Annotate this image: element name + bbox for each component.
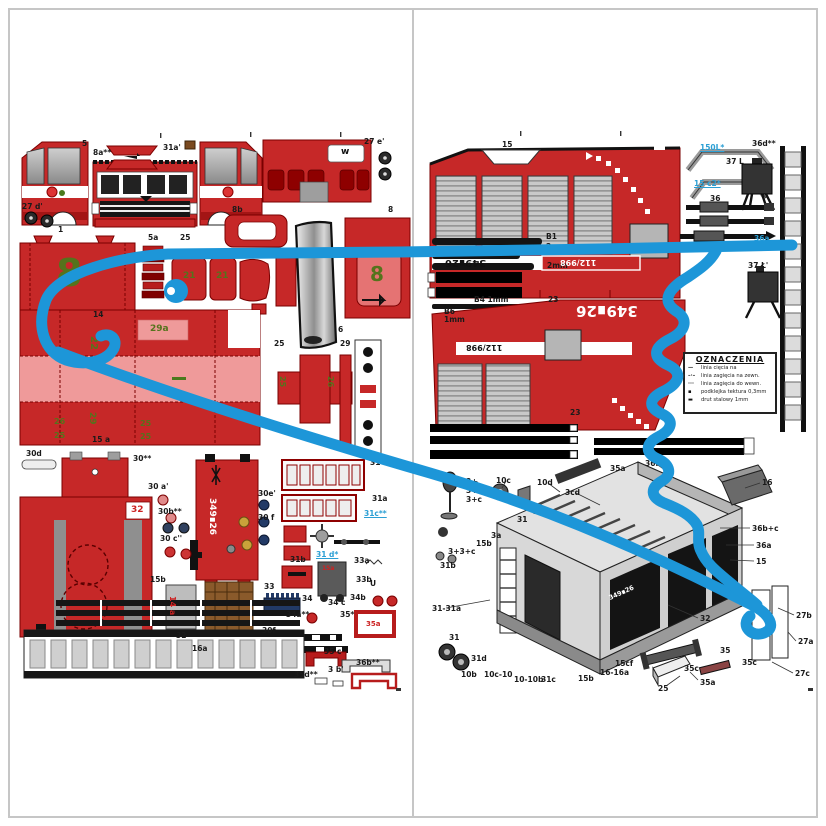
part-label: 31 xyxy=(517,516,527,524)
part-label: 35a xyxy=(700,679,716,687)
part-label: 34 xyxy=(302,595,312,603)
part-label: 2mm xyxy=(546,243,567,251)
part-label: 25 xyxy=(54,432,65,440)
part-label: B4 1mm xyxy=(474,296,508,304)
part-label: 8a** xyxy=(93,149,111,157)
part-label: 30b** xyxy=(158,508,182,516)
part-label: 32 xyxy=(176,632,186,640)
part-label: 31b xyxy=(290,556,306,564)
part-label: 36b** xyxy=(356,659,380,667)
part-label: 30 c'' xyxy=(160,535,182,543)
part-label: 8b xyxy=(232,206,243,214)
part-label: 35a xyxy=(366,621,380,628)
part-label: 32 xyxy=(131,506,144,515)
part-label: 21 xyxy=(216,272,229,281)
part-label: 36d** xyxy=(752,140,776,148)
part-label: 349∎26 xyxy=(445,257,486,267)
part-label: 21 xyxy=(183,272,196,281)
part-label: 25 xyxy=(140,433,151,441)
part-label: 27 d' xyxy=(22,203,43,211)
part-label: w xyxy=(341,148,349,157)
part-label: 15b xyxy=(150,576,166,584)
part-label: 3+3+c xyxy=(448,548,475,556)
part-label: 35 c xyxy=(324,648,342,656)
part-label: 35 xyxy=(720,647,730,655)
part-label: 27c xyxy=(795,670,810,678)
part-label: 26 xyxy=(326,376,334,387)
part-label: 27b xyxy=(796,612,812,620)
part-label: 15cf xyxy=(615,660,633,668)
part-label: 31 d* xyxy=(316,551,338,559)
part-label: 10b xyxy=(461,671,477,679)
part-label: 23 xyxy=(548,296,558,304)
part-label: 34b xyxy=(350,594,366,602)
part-label: U xyxy=(370,580,376,588)
part-label: 30f xyxy=(262,627,276,635)
part-label: 25 xyxy=(140,420,151,428)
part-label: 29a xyxy=(150,325,169,334)
part-label: 35c xyxy=(742,659,757,667)
part-label: 37 L xyxy=(726,158,744,166)
part-label: 22 xyxy=(88,336,98,350)
part-label: 35d** xyxy=(294,671,318,679)
part-label: 8 xyxy=(388,206,393,214)
part-label: 150L* xyxy=(700,144,724,152)
part-label: 5 xyxy=(82,140,87,148)
part-label: 8 xyxy=(56,254,82,292)
part-label: 35* xyxy=(340,611,354,619)
part-label: 35c xyxy=(684,665,699,673)
part-label: 15a xyxy=(322,566,334,572)
part-label: 15 a xyxy=(92,436,110,444)
part-label: 33 xyxy=(264,583,274,591)
part-label: 29 xyxy=(340,340,350,348)
part-label: 31a xyxy=(372,495,388,503)
part-label: 10-10b xyxy=(514,676,543,684)
part-label: 15b xyxy=(476,540,492,548)
part-label: 36f xyxy=(645,460,659,468)
part-label: 30e' xyxy=(258,490,276,498)
part-label: 31d xyxy=(471,655,487,663)
part-label: 31c xyxy=(541,676,556,684)
part-label: 16a xyxy=(192,645,208,653)
part-label: 10c-10 xyxy=(484,671,512,679)
part-label: 23 xyxy=(570,409,580,417)
part-label: 35a xyxy=(610,465,626,473)
part-label: 3a xyxy=(491,532,501,540)
part-label: 30d xyxy=(26,450,42,458)
part-label: 14 xyxy=(93,311,103,319)
part-label: 37 Ł' xyxy=(748,262,768,270)
part-labels-layer: 58a**31a'27 e'w827 d'15a258b625298821211… xyxy=(0,0,826,826)
part-label: 36b+c xyxy=(752,525,779,533)
part-label: B1 xyxy=(546,233,557,241)
part-label: 112/998 xyxy=(466,343,502,351)
part-label: 31b xyxy=(440,562,456,570)
part-label: 3cd xyxy=(565,489,580,497)
part-label: 29 xyxy=(87,412,96,425)
part-label: 15b xyxy=(578,675,594,683)
part-label: 36 xyxy=(710,195,720,203)
part-label: 31 xyxy=(449,634,459,642)
part-label: 6 xyxy=(338,326,343,334)
part-label: 25 xyxy=(180,234,190,242)
part-label: 34a** xyxy=(286,611,309,619)
part-label: 30 a' xyxy=(148,483,168,491)
part-label: 26 xyxy=(54,418,65,426)
part-label: 36a xyxy=(756,542,772,550)
part-label: 30** xyxy=(133,455,151,463)
part-label: 27a xyxy=(798,638,814,646)
part-label: 15 xyxy=(502,141,512,149)
part-label: 10d xyxy=(537,479,553,487)
part-label: 3b xyxy=(533,508,544,516)
part-label: 16-16a xyxy=(600,669,629,677)
part-label: 10c xyxy=(496,477,511,485)
part-label: 32 xyxy=(700,615,710,623)
part-label: 349∎26 xyxy=(576,303,638,318)
part-label: 3+b xyxy=(466,487,483,495)
part-label: 8 xyxy=(370,264,384,284)
part-label: 1 xyxy=(58,226,63,234)
part-label: 33a xyxy=(354,557,370,565)
part-label: 112/998 xyxy=(560,258,596,266)
part-label: 27 e' xyxy=(364,138,384,146)
part-label: 1mm xyxy=(444,316,465,324)
part-label: 31a' xyxy=(163,144,181,152)
part-label: 349∎26 xyxy=(207,498,216,535)
part-label: 14 a xyxy=(168,596,176,615)
part-label: 30 f xyxy=(258,514,274,522)
part-label: 25 xyxy=(658,685,668,693)
part-label: 3 b' xyxy=(328,666,344,674)
part-label: 15 xyxy=(756,558,766,566)
part-label: 5a xyxy=(148,234,158,242)
part-label: 31-31a xyxy=(432,605,461,613)
part-label: 25 xyxy=(278,376,286,387)
part-label: 15 c2* xyxy=(694,180,721,188)
part-label: 36a xyxy=(754,235,770,243)
scanned-model-sheet: 349∎26 xyxy=(0,0,826,826)
part-label: 16 xyxy=(762,479,772,487)
part-label: 3+ xyxy=(466,478,478,486)
part-label: 31c** xyxy=(364,510,387,518)
part-label: 3+c xyxy=(466,496,482,504)
part-label: 25 xyxy=(274,340,284,348)
part-label: 31 xyxy=(370,459,380,467)
part-label: 34 c xyxy=(328,599,346,607)
